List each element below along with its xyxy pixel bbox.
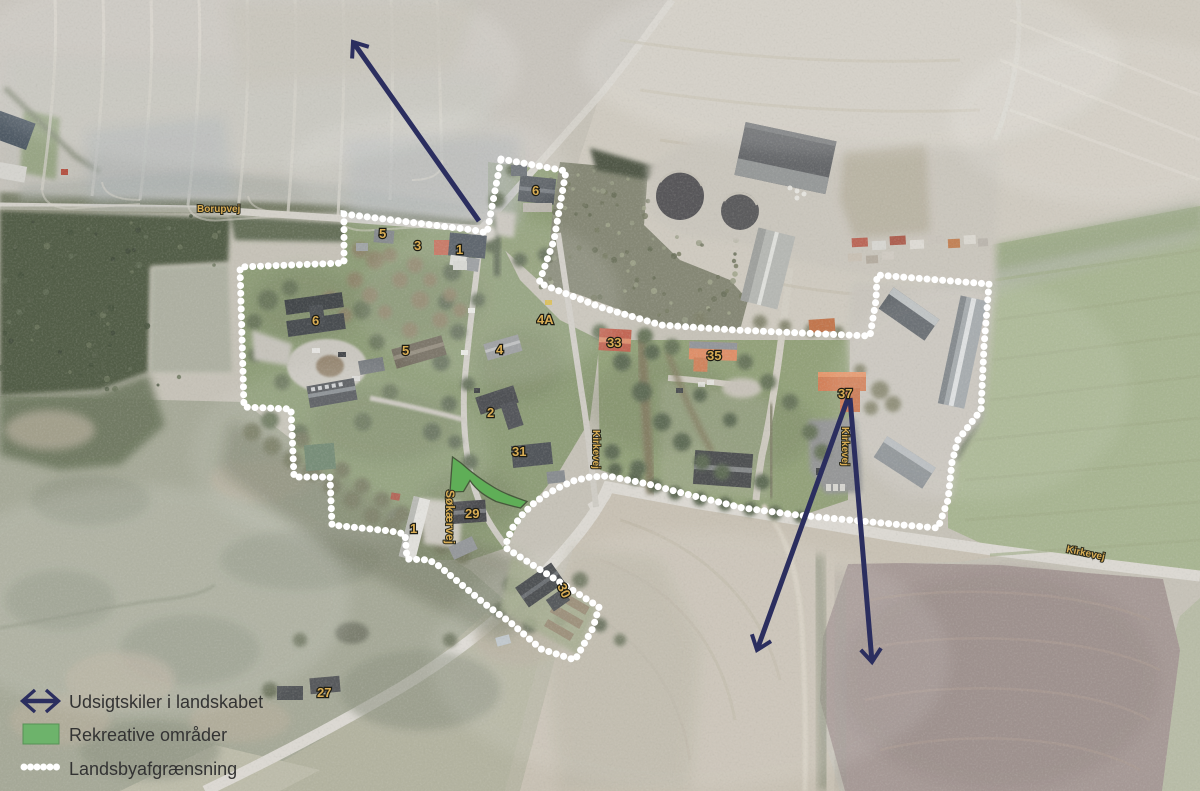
svg-text:Landsbyafgrænsning: Landsbyafgrænsning xyxy=(69,759,237,779)
svg-text:5: 5 xyxy=(379,226,386,241)
svg-text:31: 31 xyxy=(512,444,526,459)
svg-text:29: 29 xyxy=(465,506,479,521)
svg-text:1: 1 xyxy=(410,521,417,536)
svg-text:33: 33 xyxy=(607,335,621,350)
svg-text:Kirkevej: Kirkevej xyxy=(590,430,601,469)
svg-text:6: 6 xyxy=(532,183,539,198)
svg-text:Søkærvej: Søkærvej xyxy=(443,490,457,544)
svg-text:3: 3 xyxy=(414,238,421,253)
svg-text:1: 1 xyxy=(456,242,463,257)
svg-text:4A: 4A xyxy=(537,312,554,327)
svg-text:5: 5 xyxy=(402,343,409,358)
svg-text:4: 4 xyxy=(496,342,504,357)
svg-text:Udsigtskiler i landskabet: Udsigtskiler i landskabet xyxy=(69,692,263,712)
svg-text:35: 35 xyxy=(707,348,721,363)
svg-text:2: 2 xyxy=(487,405,494,420)
svg-text:27: 27 xyxy=(317,685,331,700)
svg-text:Borupvej: Borupvej xyxy=(197,204,241,215)
svg-text:37: 37 xyxy=(838,386,852,401)
svg-text:6: 6 xyxy=(312,313,319,328)
svg-text:Rekreative områder: Rekreative områder xyxy=(69,725,227,745)
svg-text:Kirkevej: Kirkevej xyxy=(839,427,850,466)
